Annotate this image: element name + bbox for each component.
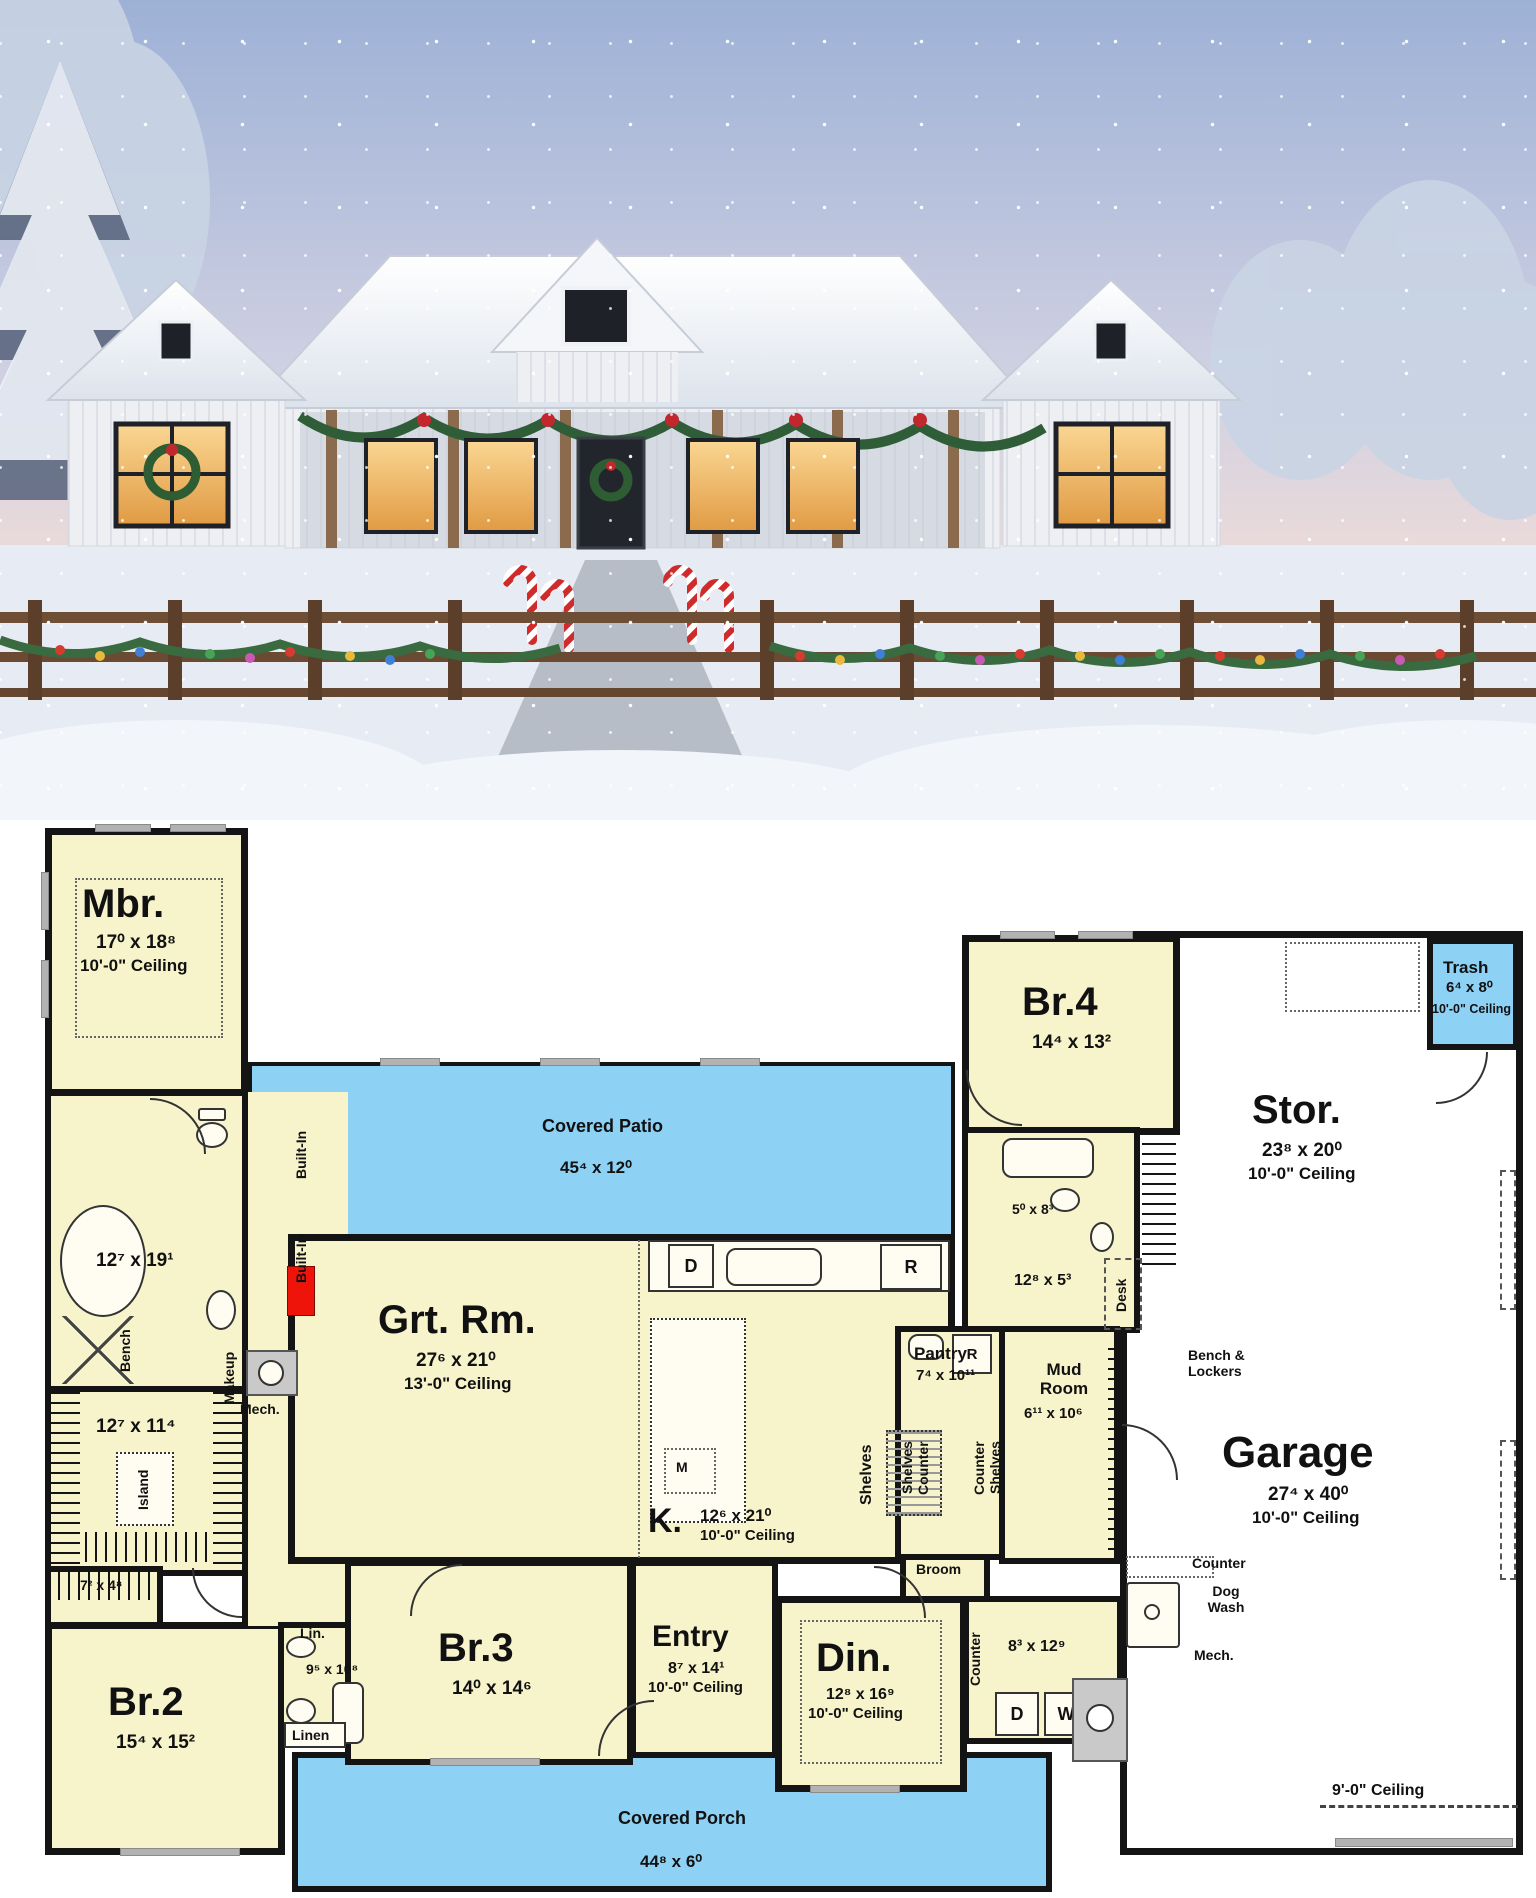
closet-rod-icon (50, 1392, 80, 1564)
room-ceiling: 10'-0" Ceiling (1252, 1508, 1360, 1527)
room-dims: 6⁴ x 8⁰ (1446, 980, 1493, 997)
room-dims: 45⁴ x 12⁰ (560, 1158, 632, 1177)
island-label: Island (136, 1464, 152, 1516)
patio-post (380, 1058, 440, 1066)
sink-icon (1090, 1222, 1114, 1252)
screenshot-root: D R M R D W (0, 0, 1536, 1898)
closet-rod-icon (1142, 1135, 1176, 1265)
room-dims: 27⁶ x 21⁰ (416, 1350, 496, 1371)
window (41, 960, 49, 1018)
room-separation-line (638, 1240, 640, 1558)
room-dims: 12⁸ x 16⁹ (826, 1686, 895, 1704)
room-dims: 27⁴ x 40⁰ (1268, 1484, 1348, 1505)
room-name: Entry (652, 1620, 729, 1654)
mech-label: Mech. (240, 1402, 280, 1418)
counter-label: Counter (972, 1408, 988, 1528)
house-photo (0, 0, 1536, 820)
mech-callout: Mech. (1194, 1648, 1234, 1664)
room-dims: 44⁸ x 6⁰ (640, 1852, 702, 1871)
window (120, 1848, 240, 1856)
room-dims: 6¹¹ x 10⁶ (1024, 1406, 1083, 1423)
window (95, 824, 151, 832)
laundry-dryer: D (995, 1692, 1039, 1736)
shelves-label: Shelves (858, 1420, 876, 1530)
room-dims: 12⁷ x 11⁴ (96, 1416, 176, 1437)
linen-label: Linen (292, 1728, 329, 1744)
room-name: Covered Porch (618, 1808, 746, 1828)
counter-label: Counter (968, 1620, 984, 1698)
room-dims: 12⁶ x 21⁰ (700, 1506, 771, 1525)
room-name: Br.2 (108, 1680, 184, 1725)
room-ceiling: 10'-0" Ceiling (80, 956, 188, 975)
built-in-label: Built-In (294, 1120, 310, 1190)
room-name: Pantry (914, 1344, 967, 1363)
floor-plan: D R M R D W (0, 820, 1536, 1898)
garage-door-outline (1500, 1170, 1516, 1310)
room-name: Br.4 (1022, 980, 1098, 1025)
water-heater-icon (258, 1360, 284, 1386)
makeup-sink-icon (206, 1290, 236, 1330)
refrigerator-label: R (905, 1257, 918, 1278)
shelves-label: Shelves (988, 1408, 1004, 1528)
window (41, 872, 49, 930)
room-ceiling: 10'-0" Ceiling (808, 1706, 903, 1723)
dryer-label: D (1011, 1704, 1024, 1725)
window (1078, 931, 1133, 939)
water-heater-icon (1086, 1704, 1114, 1732)
lockers-icon (1108, 1340, 1122, 1550)
pantry-refrigerator-label: R (967, 1346, 978, 1363)
dog-wash-callout: Dog Wash (1198, 1584, 1254, 1615)
desk-label: Desk (1114, 1260, 1130, 1330)
covered-patio (248, 1062, 955, 1240)
closet-rod-icon (85, 1532, 215, 1562)
kitchen-sink-icon (726, 1248, 822, 1286)
room-name: Covered Patio (542, 1116, 663, 1136)
room-name: Din. (816, 1636, 892, 1681)
room-dims: 5⁰ x 8³ (1012, 1202, 1053, 1218)
room-ceiling: 13'-0" Ceiling (404, 1374, 512, 1393)
counter-callout: Counter (1192, 1556, 1246, 1572)
linen-label: Lin. (300, 1626, 325, 1642)
room-dims: 14⁰ x 14⁶ (452, 1678, 532, 1699)
built-in-label: Built-In (294, 1224, 310, 1294)
window (430, 1758, 540, 1766)
garage-rear-ceiling-note: 9'-0" Ceiling (1332, 1782, 1424, 1800)
farmhouse-scene (0, 0, 1536, 820)
room-name: Trash (1443, 958, 1488, 977)
patio-post (540, 1058, 600, 1066)
room-dims: 15⁴ x 15² (116, 1732, 195, 1753)
room-name: Garage (1222, 1428, 1374, 1477)
counter-label: Counter (916, 1408, 932, 1528)
room-dims: 17⁰ x 18⁸ (96, 932, 176, 953)
ceiling-break-line (1320, 1805, 1518, 1808)
window (170, 824, 226, 832)
shelves-label: Shelves (900, 1408, 916, 1528)
room-name: Mbr. (82, 882, 164, 927)
microwave-label: M (676, 1460, 688, 1476)
room-name: Br.3 (438, 1626, 514, 1671)
room-dims: 9⁵ x 10⁸ (306, 1662, 358, 1678)
room-dims: 8³ x 12⁹ (1008, 1638, 1065, 1656)
room-name: Stor. (1252, 1088, 1341, 1133)
door-swing-icon (192, 1568, 242, 1618)
bench-label: Bench (118, 1320, 134, 1382)
room-dims: 23⁸ x 20⁰ (1262, 1140, 1342, 1161)
room-name: Mud Room (1022, 1360, 1106, 1398)
toilet-tank-icon (198, 1108, 226, 1121)
room-dims: 14⁴ x 13² (1032, 1032, 1111, 1053)
toilet-icon (286, 1698, 316, 1724)
window (810, 1785, 900, 1793)
room-ceiling: 10'-0" Ceiling (1432, 1002, 1511, 1016)
broom-label: Broom (916, 1562, 961, 1578)
room-ceiling: 10'-0" Ceiling (648, 1680, 743, 1697)
dishwasher: D (668, 1244, 714, 1288)
room-dims: 7² x 4⁸ (80, 1578, 122, 1594)
room-name: Grt. Rm. (378, 1298, 536, 1343)
room-dims: 7⁴ x 10¹¹ (916, 1368, 975, 1385)
room-dims: 12⁸ x 5³ (1014, 1272, 1071, 1290)
room-dims: 12⁷ x 19¹ (96, 1250, 174, 1271)
refrigerator: R (880, 1244, 942, 1290)
tub-icon (1002, 1138, 1094, 1178)
makeup-label: Makeup (222, 1338, 238, 1418)
microwave-outline (664, 1448, 716, 1494)
bench-lockers-callout: Bench & Lockers (1188, 1348, 1278, 1379)
room-name: K. (648, 1502, 682, 1540)
room-ceiling: 10'-0" Ceiling (700, 1528, 795, 1545)
drain-icon (1144, 1604, 1160, 1620)
overhead-door-outline (1285, 942, 1420, 1012)
patio-post (700, 1058, 760, 1066)
room-ceiling: 10'-0" Ceiling (1248, 1164, 1356, 1183)
room-dims: 8⁷ x 14¹ (668, 1660, 724, 1678)
toilet-icon (1050, 1188, 1080, 1212)
garage-door-sill (1335, 1838, 1513, 1847)
garage-door-outline (1500, 1440, 1516, 1580)
window (1000, 931, 1055, 939)
dishwasher-label: D (685, 1256, 698, 1277)
